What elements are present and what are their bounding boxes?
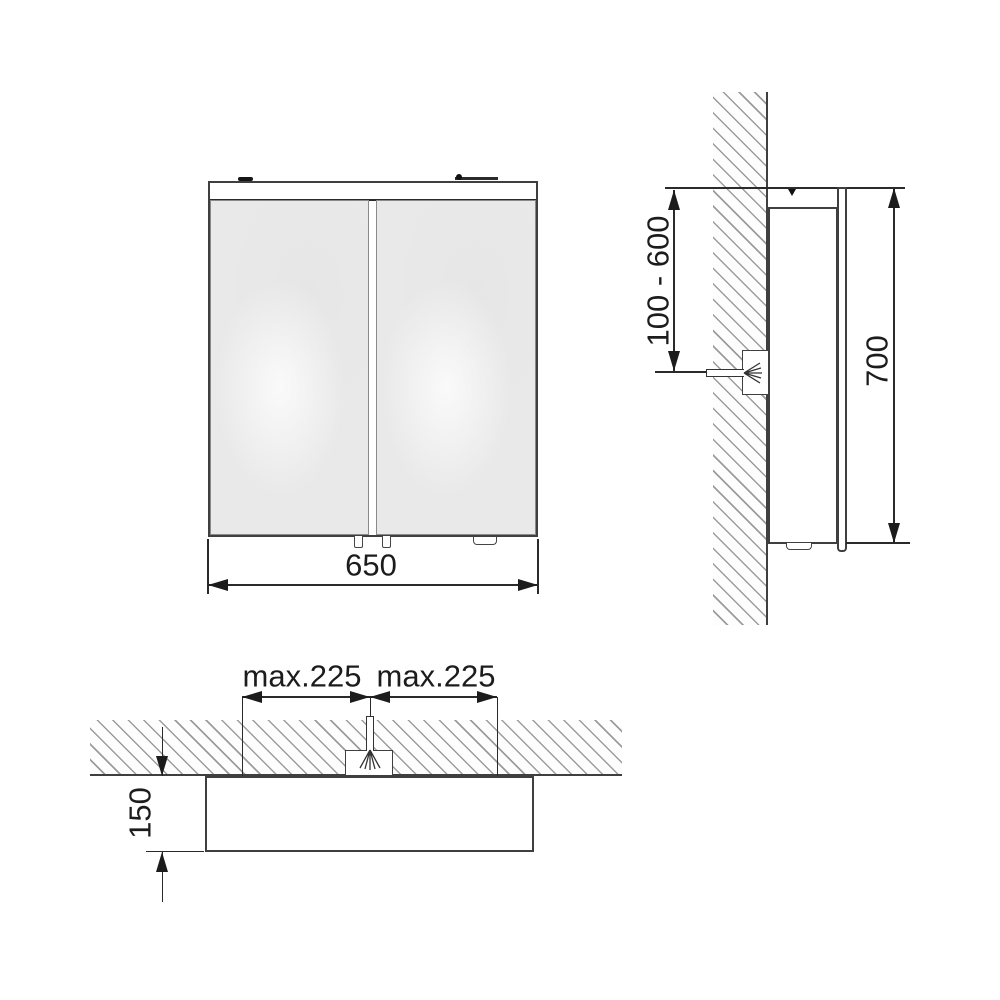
cable-wires-icon bbox=[358, 749, 382, 771]
bottom-latch-side bbox=[786, 543, 812, 550]
bottom-latch-front bbox=[473, 537, 497, 545]
cable-side bbox=[706, 369, 744, 377]
mirror-cabinet-technical-drawing: 650 700 100 - 600 bbox=[0, 0, 1000, 1000]
dim-side-height-label: 700 bbox=[862, 335, 893, 387]
extension-line bbox=[242, 697, 243, 776]
arrowhead-right bbox=[518, 579, 538, 591]
dim-wall-offset-label: 150 bbox=[125, 787, 156, 839]
dim-outlet-range-label: 100 - 600 bbox=[643, 216, 674, 347]
power-cable-dot bbox=[456, 174, 462, 180]
extension-line-top bbox=[665, 187, 905, 189]
arrowhead-down bbox=[888, 523, 900, 543]
arrowhead-up bbox=[888, 188, 900, 208]
dim-spacing-right-label: max.225 bbox=[377, 661, 496, 692]
mirror-door-right bbox=[376, 200, 536, 535]
arrowhead-left bbox=[208, 579, 228, 591]
top-fixing-tab bbox=[238, 177, 253, 181]
extension-line bbox=[497, 697, 498, 776]
arrowhead-down bbox=[668, 351, 680, 371]
cabinet-bottom-body bbox=[205, 776, 534, 852]
mirror-door-side bbox=[837, 187, 847, 552]
arrowhead-down bbox=[156, 756, 168, 776]
cabinet-side-body bbox=[768, 207, 838, 544]
cable-wires-icon bbox=[743, 361, 763, 385]
cable-bottom bbox=[366, 716, 374, 751]
arrowhead-up bbox=[668, 190, 680, 210]
door-pin-right bbox=[382, 536, 391, 548]
mirror-door-left bbox=[210, 200, 369, 535]
dim-spacing-left-label: max.225 bbox=[243, 661, 362, 692]
top-fixing-tick bbox=[788, 189, 796, 196]
extension-line-bottom bbox=[846, 542, 910, 544]
extension-line-outlet bbox=[655, 371, 707, 373]
door-pin-left bbox=[354, 536, 363, 548]
dim-front-width-label: 650 bbox=[345, 550, 397, 581]
arrowhead-up bbox=[156, 852, 168, 872]
dimension-line-650 bbox=[208, 584, 538, 586]
extension-line-150 bbox=[146, 851, 204, 852]
